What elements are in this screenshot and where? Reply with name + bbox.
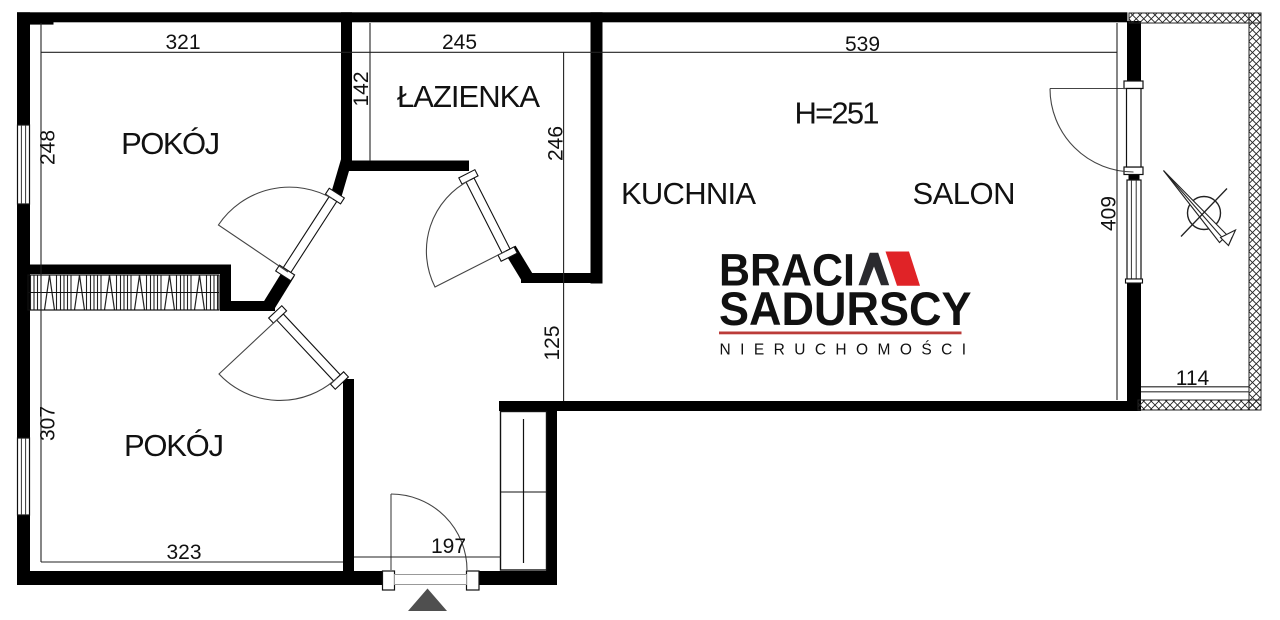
svg-text:NIERUCHOMOŚCI: NIERUCHOMOŚCI <box>720 341 967 359</box>
svg-text:248: 248 <box>37 130 60 165</box>
svg-text:125: 125 <box>541 325 564 360</box>
svg-text:H=251: H=251 <box>795 96 880 131</box>
svg-text:SALON: SALON <box>913 176 1016 211</box>
svg-text:307: 307 <box>37 406 60 441</box>
svg-text:POKÓJ: POKÓJ <box>124 428 224 463</box>
svg-text:321: 321 <box>165 31 200 54</box>
svg-text:KUCHNIA: KUCHNIA <box>621 176 756 211</box>
svg-text:539: 539 <box>845 33 880 56</box>
svg-text:245: 245 <box>442 31 477 54</box>
svg-text:246: 246 <box>545 126 568 161</box>
svg-text:114: 114 <box>1176 367 1210 390</box>
svg-text:POKÓJ: POKÓJ <box>121 126 220 161</box>
svg-text:142: 142 <box>350 71 373 106</box>
svg-text:323: 323 <box>166 541 201 564</box>
svg-text:ŁAZIENKA: ŁAZIENKA <box>397 79 540 114</box>
svg-text:197: 197 <box>431 535 466 558</box>
svg-text:SADURSCY: SADURSCY <box>719 282 972 335</box>
svg-text:409: 409 <box>1098 196 1121 231</box>
